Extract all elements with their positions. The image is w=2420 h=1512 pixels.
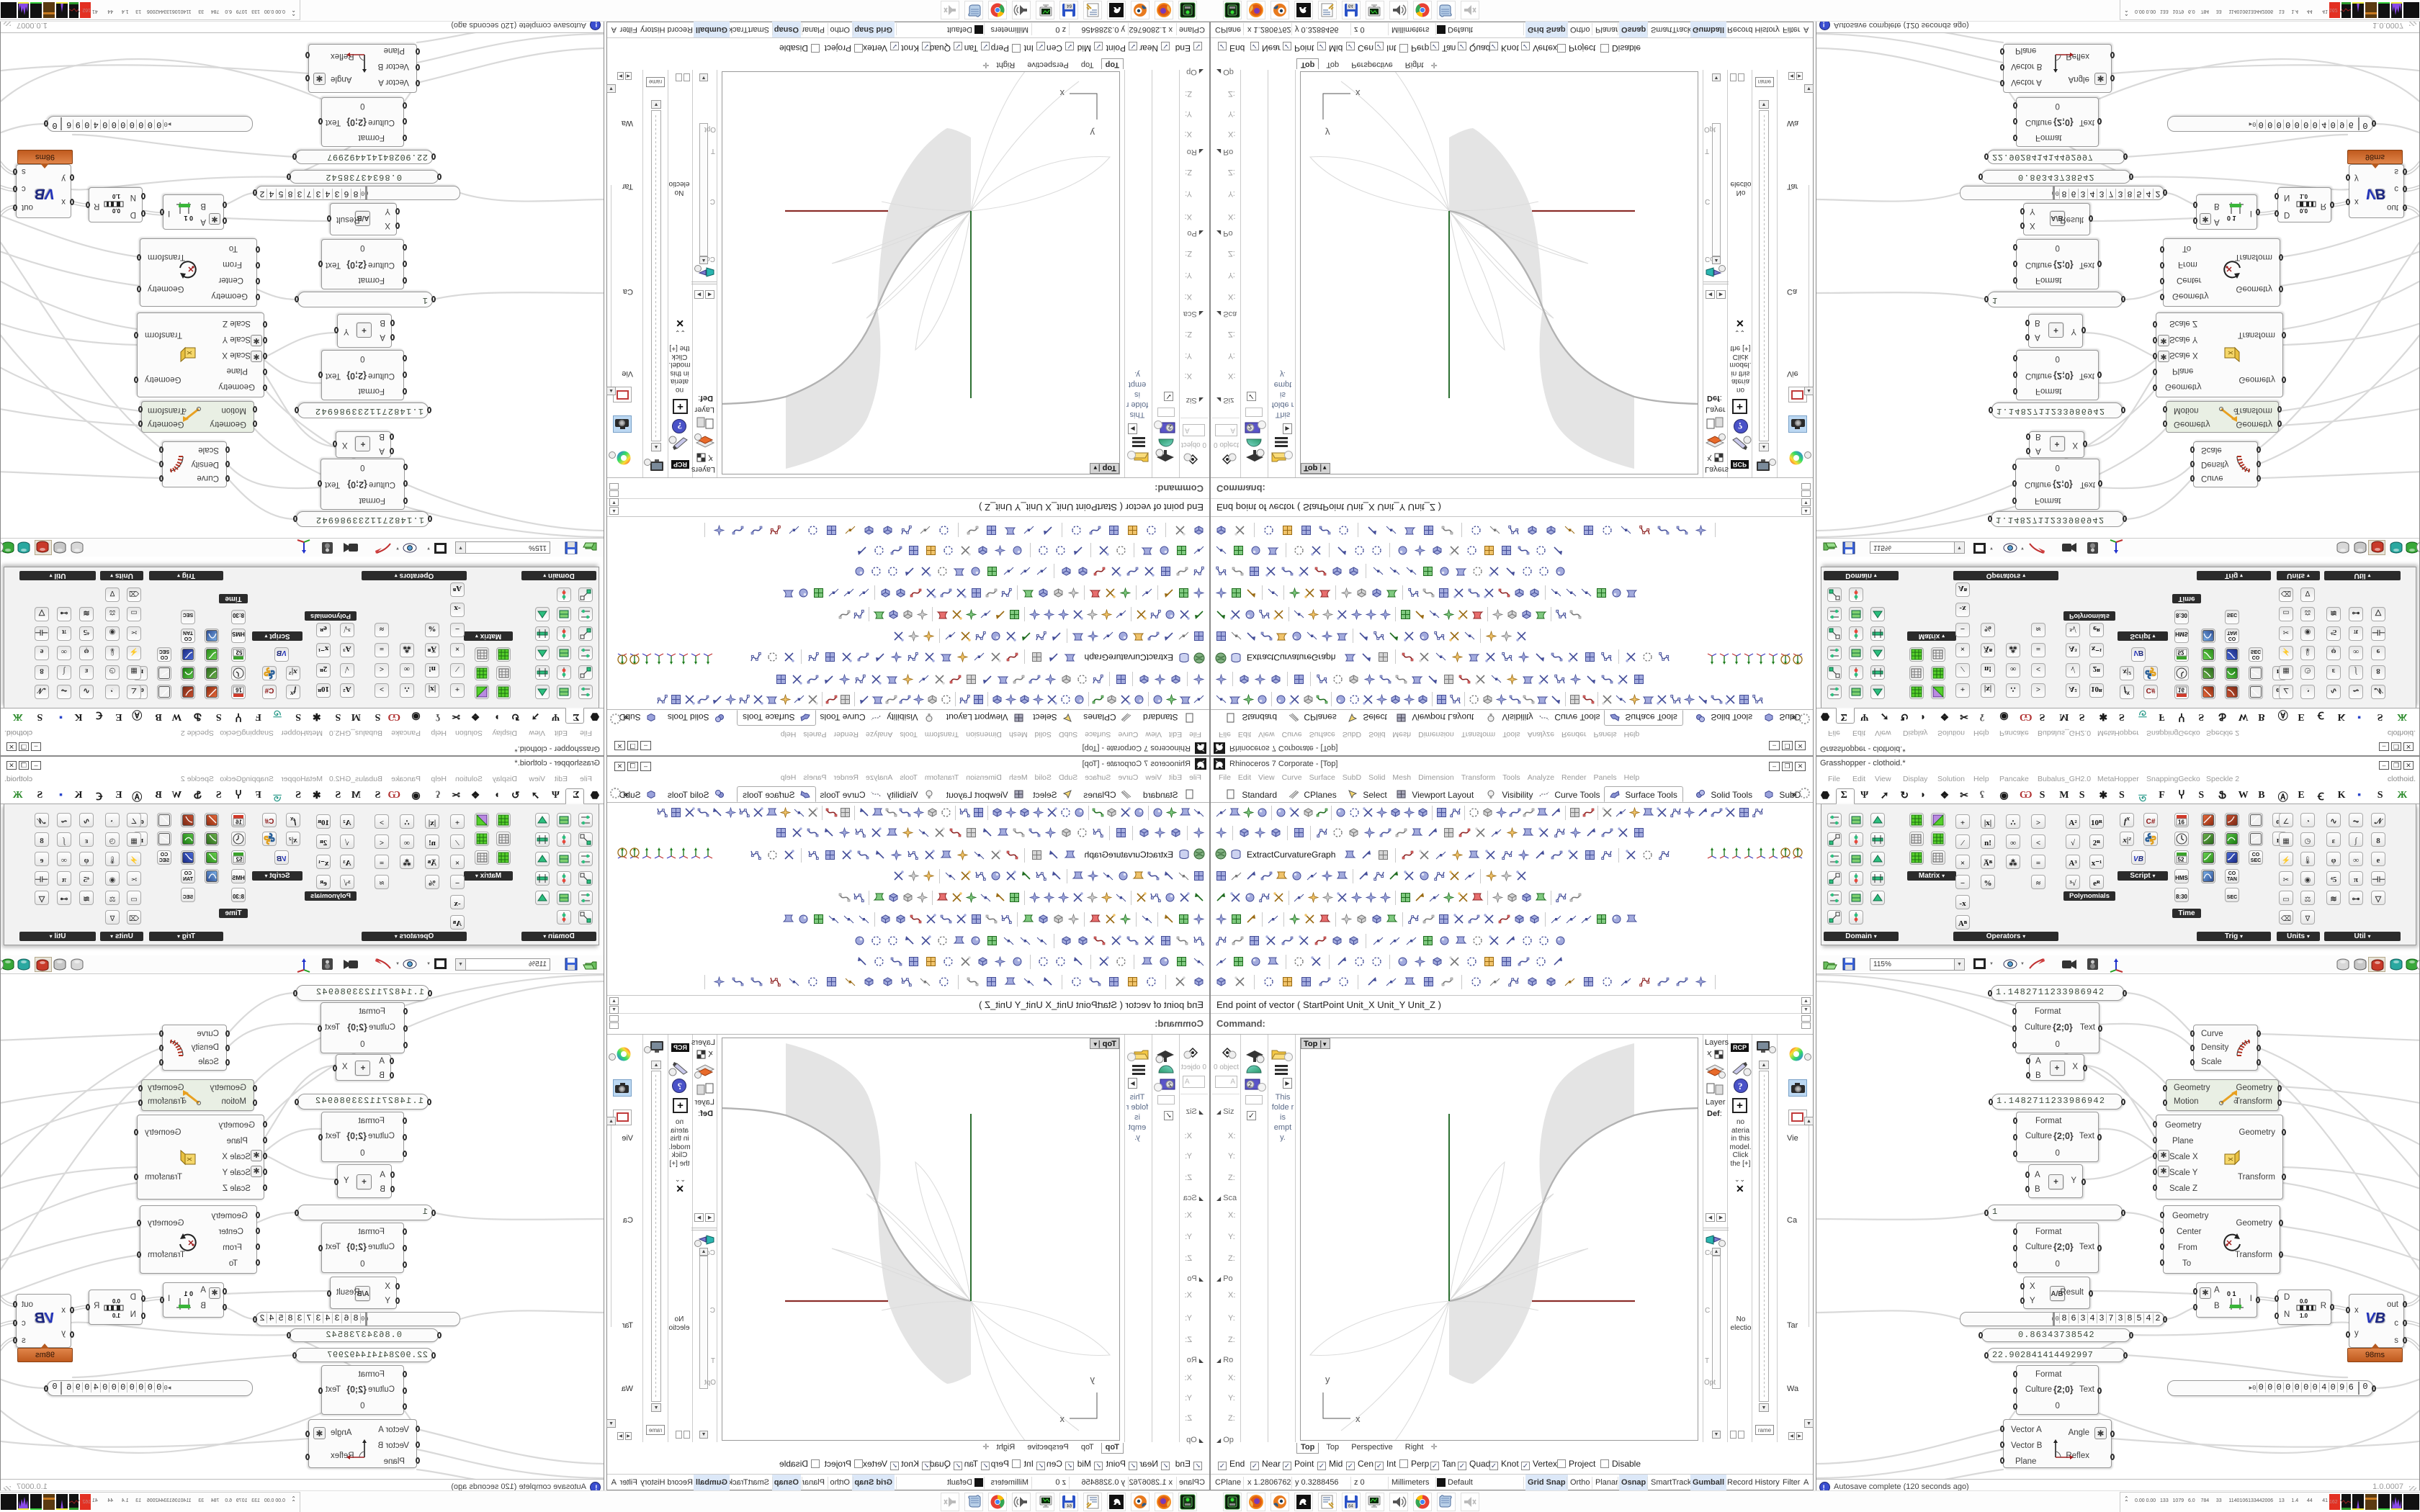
svg-text:1.0: 1.0	[112, 1313, 120, 1319]
svg-text:?: ?	[1738, 420, 1743, 431]
svg-text:64: 64	[1348, 4, 1353, 8]
svg-text:1.0: 1.0	[112, 193, 120, 199]
svg-text:2: 2	[1168, 423, 1172, 431]
svg-text:y: y	[1090, 1374, 1095, 1385]
svg-text:2: 2	[1248, 1081, 1252, 1089]
svg-text:52: 52	[2178, 649, 2184, 656]
svg-text:y: y	[1325, 127, 1330, 138]
svg-text:x: x	[1355, 1413, 1361, 1424]
svg-text:1.0: 1.0	[2300, 1313, 2308, 1319]
svg-text:x: x	[1059, 1413, 1065, 1424]
svg-text:64: 64	[1067, 4, 1072, 8]
svg-text:0 1: 0 1	[184, 1290, 193, 1297]
svg-text:0 1: 0 1	[2227, 215, 2236, 222]
svg-text:0.0: 0.0	[2300, 207, 2308, 214]
svg-text:52: 52	[2178, 857, 2184, 863]
svg-text:?: ?	[678, 1081, 683, 1092]
svg-text:0 1: 0 1	[2227, 1290, 2236, 1297]
svg-text:0.0: 0.0	[112, 1298, 120, 1305]
svg-text:0.0: 0.0	[112, 207, 120, 214]
svg-text:16: 16	[236, 819, 242, 826]
svg-text:52: 52	[236, 649, 242, 656]
svg-text:64: 64	[1067, 1505, 1072, 1509]
svg-text:16: 16	[236, 687, 242, 693]
svg-text:52: 52	[236, 857, 242, 863]
svg-text:16: 16	[2178, 687, 2184, 693]
svg-text:?: ?	[1738, 1081, 1743, 1092]
svg-text:2: 2	[1248, 423, 1252, 431]
svg-text:x: x	[1355, 88, 1361, 99]
svg-text:?: ?	[678, 420, 683, 431]
svg-text:y: y	[1325, 1374, 1330, 1385]
svg-text:0.0: 0.0	[2300, 1298, 2308, 1305]
svg-text:0 1: 0 1	[184, 215, 193, 222]
svg-text:x: x	[1059, 88, 1065, 99]
svg-text:2: 2	[1168, 1081, 1172, 1089]
svg-text:16: 16	[2178, 819, 2184, 826]
svg-text:64: 64	[1348, 1505, 1353, 1509]
svg-text:1.0: 1.0	[2300, 193, 2308, 199]
svg-text:y: y	[1090, 127, 1095, 138]
